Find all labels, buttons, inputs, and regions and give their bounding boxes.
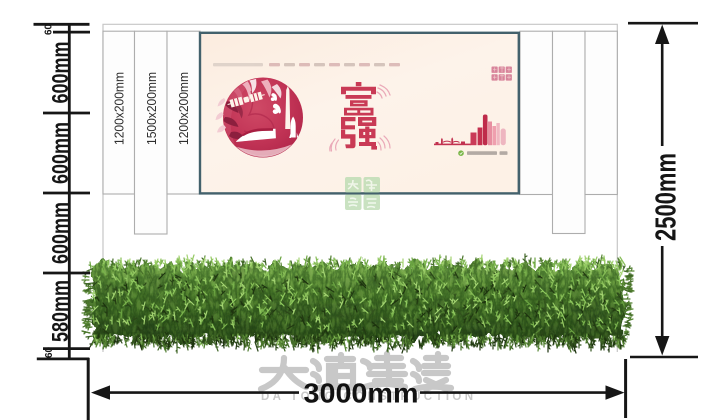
svg-text:60: 60 xyxy=(44,347,55,358)
svg-text:1500x200mm: 1500x200mm xyxy=(144,72,159,145)
svg-text:3000mm: 3000mm xyxy=(304,378,419,409)
svg-text:2500mm: 2500mm xyxy=(651,153,683,241)
svg-text:600mm: 600mm xyxy=(47,42,73,104)
svg-text:1200x200mm: 1200x200mm xyxy=(176,72,191,145)
svg-text:580mm: 580mm xyxy=(47,280,73,342)
svg-text:600mm: 600mm xyxy=(47,122,73,184)
svg-text:600mm: 600mm xyxy=(47,202,73,264)
svg-text:60: 60 xyxy=(44,24,55,35)
svg-text:1200x200mm: 1200x200mm xyxy=(112,72,127,145)
